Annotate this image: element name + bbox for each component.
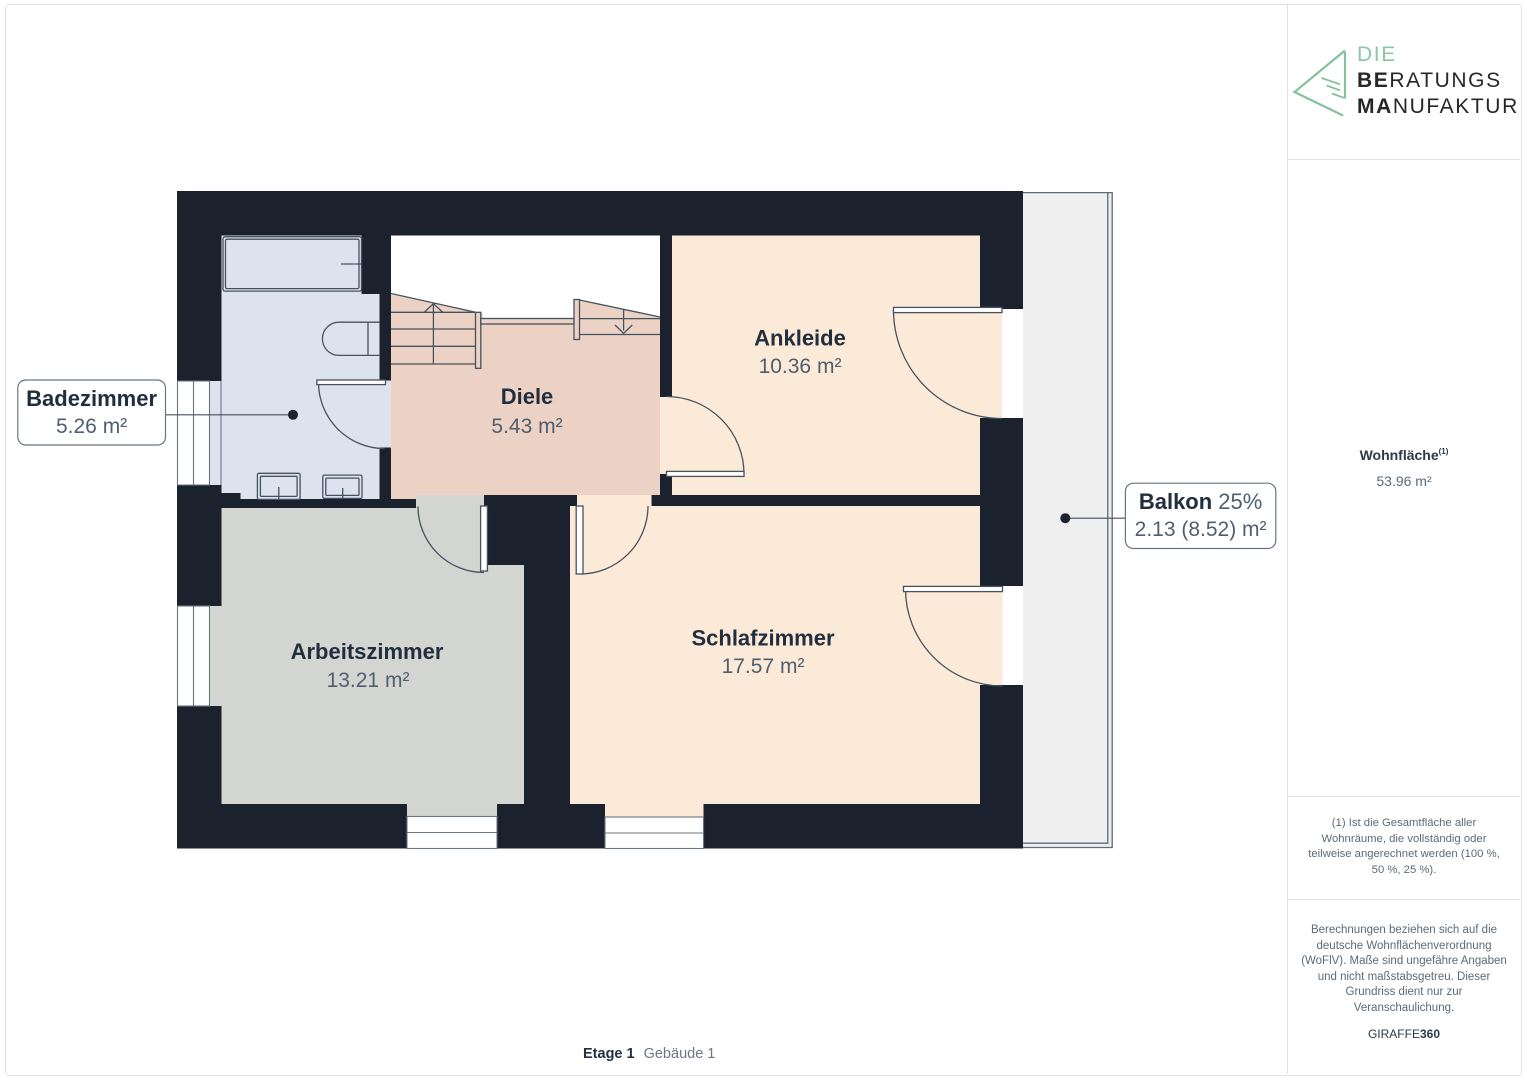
- svg-text:5.26 m²: 5.26 m²: [56, 415, 127, 438]
- svg-text:17.57 m²: 17.57 m²: [722, 655, 805, 678]
- svg-text:Diele: Diele: [501, 384, 554, 409]
- svg-text:5.43 m²: 5.43 m²: [491, 415, 562, 438]
- svg-text:Balkon 25%: Balkon 25%: [1139, 489, 1263, 514]
- svg-text:2.13 (8.52) m²: 2.13 (8.52) m²: [1135, 518, 1267, 541]
- svg-text:Badezimmer: Badezimmer: [26, 386, 157, 411]
- svg-text:Schlafzimmer: Schlafzimmer: [691, 626, 834, 651]
- svg-text:Arbeitszimmer: Arbeitszimmer: [291, 639, 444, 664]
- svg-text:10.36 m²: 10.36 m²: [759, 355, 842, 378]
- svg-text:Ankleide: Ankleide: [754, 326, 846, 351]
- svg-text:13.21 m²: 13.21 m²: [327, 669, 410, 692]
